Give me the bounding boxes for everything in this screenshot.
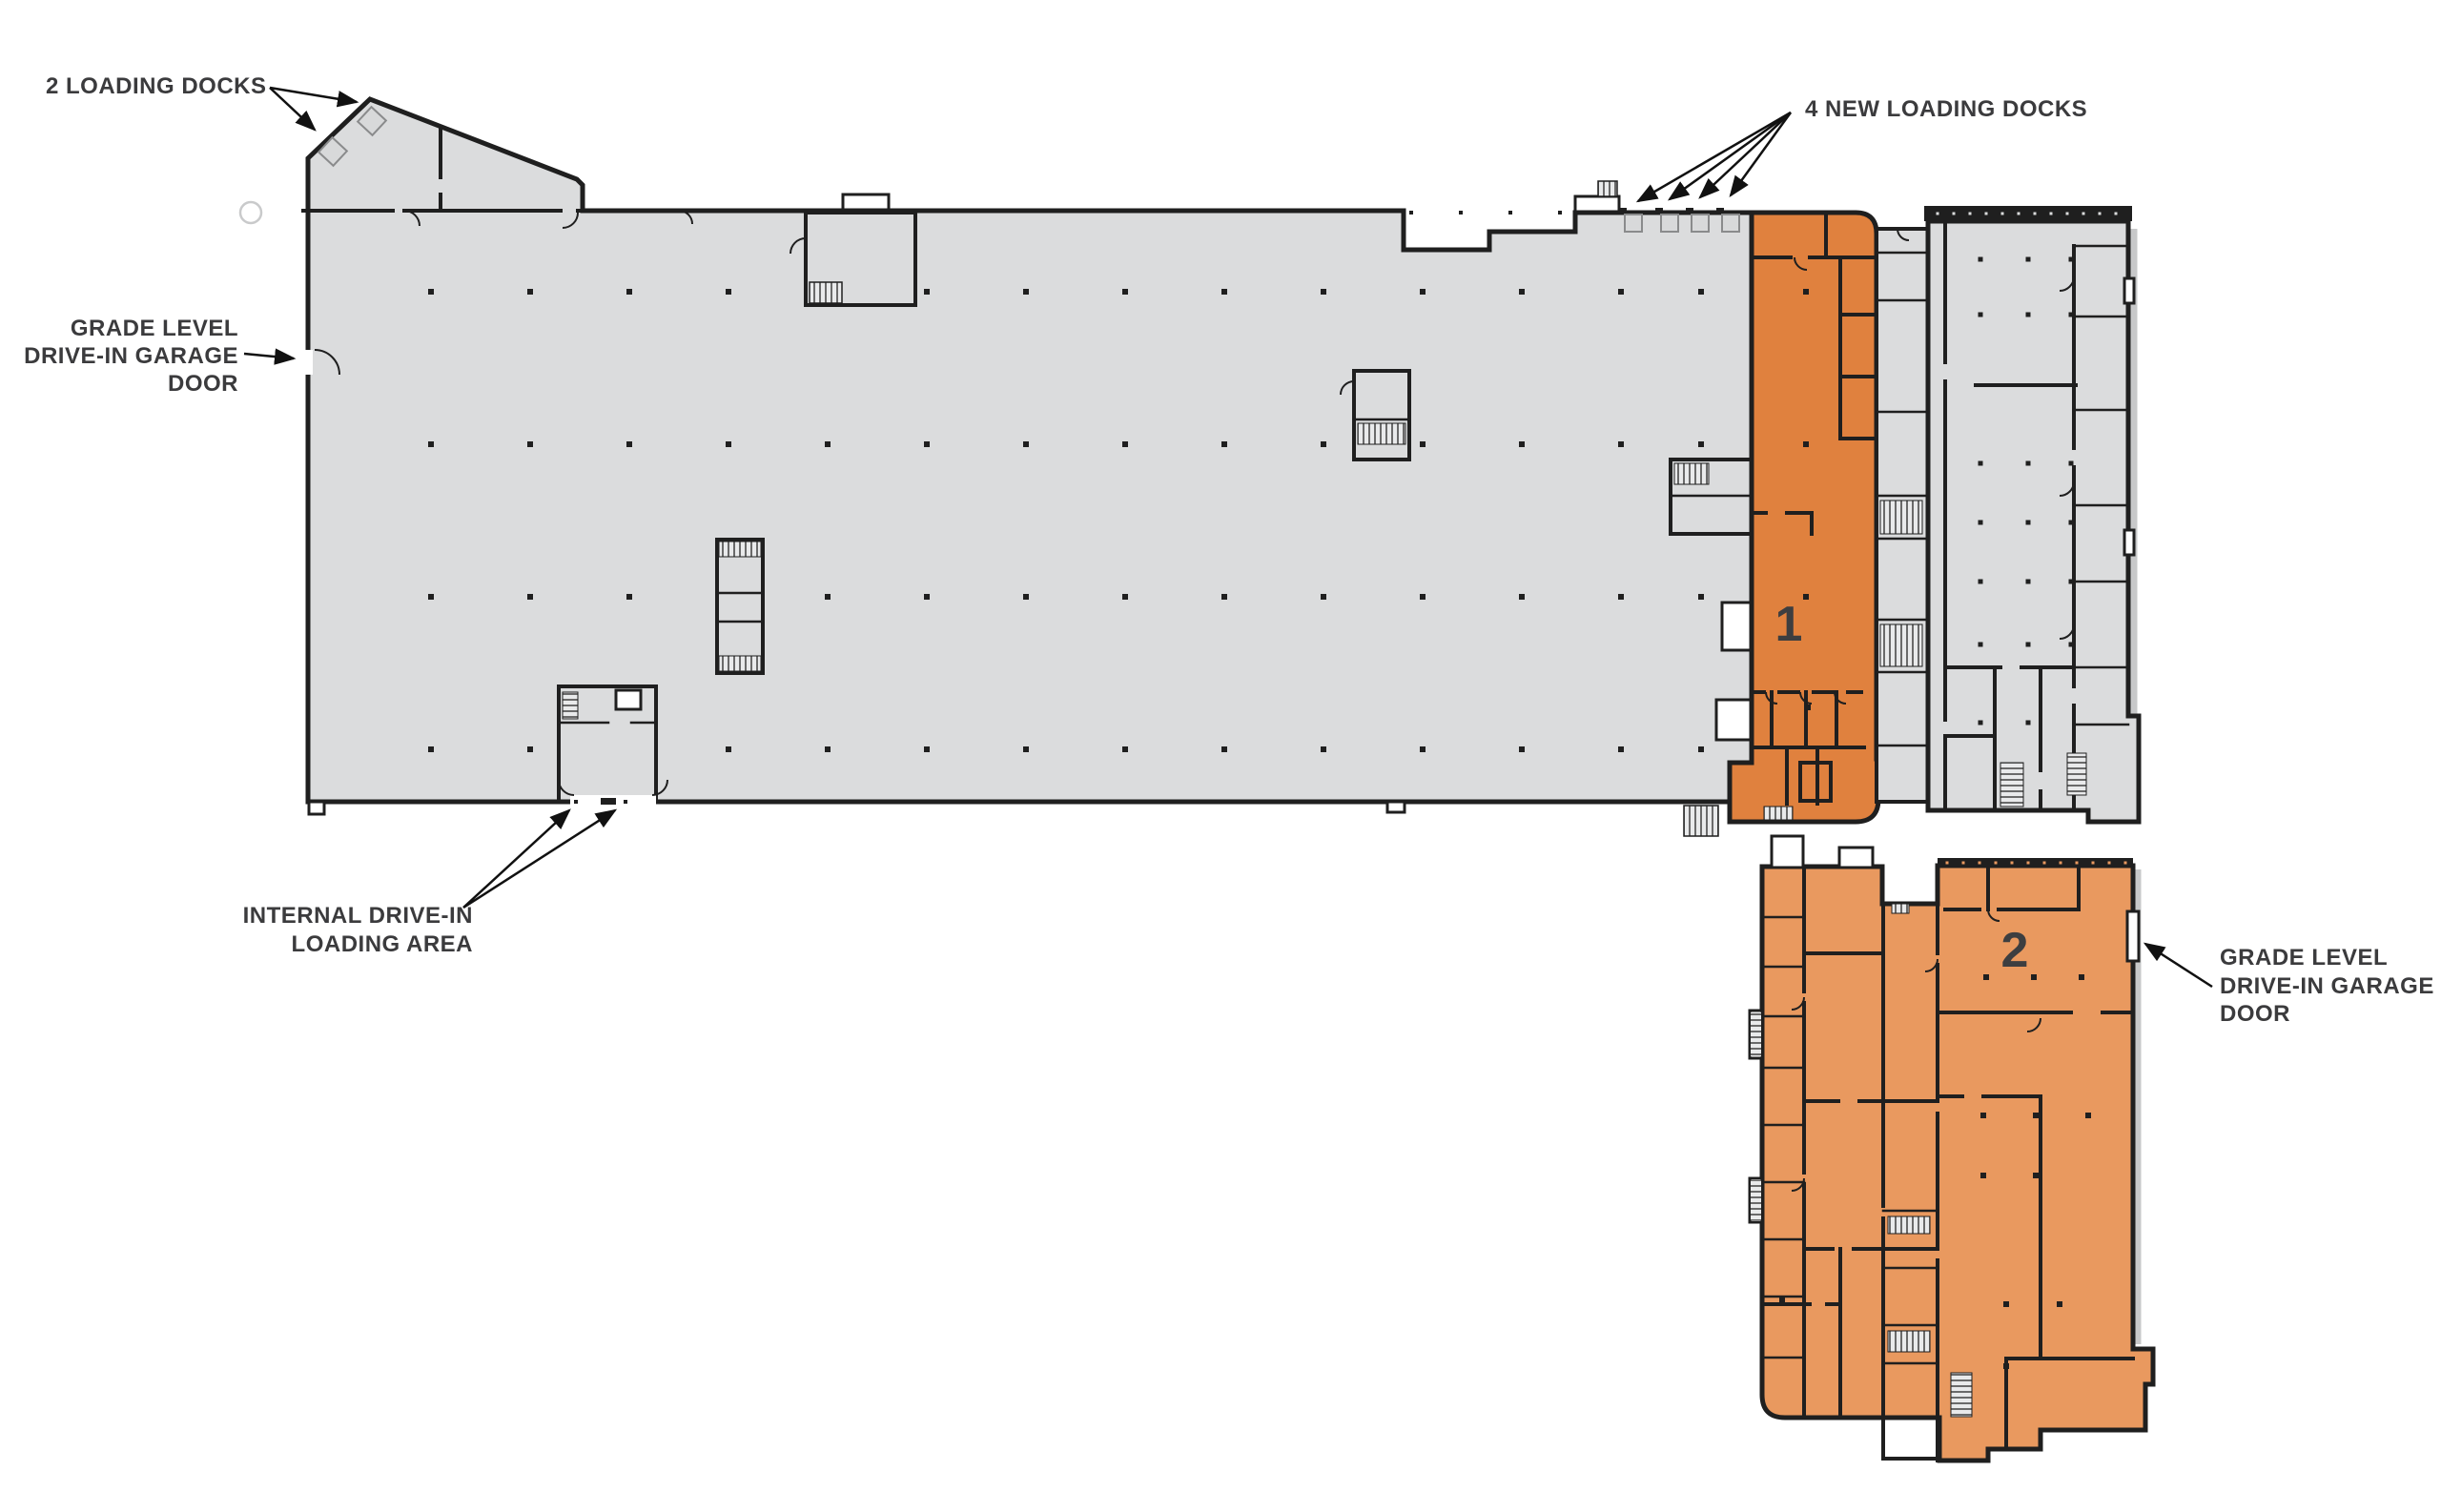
right-wing xyxy=(1928,221,2139,822)
svg-text:GRADE LEVEL: GRADE LEVEL xyxy=(2220,945,2388,971)
svg-text:DOOR: DOOR xyxy=(2220,1001,2290,1027)
label-grade-level-left: GRADE LEVEL DRIVE-IN GARAGE DOOR xyxy=(24,316,238,397)
label-grade-level-right: GRADE LEVEL DRIVE-IN GARAGE DOOR xyxy=(2220,945,2434,1027)
floor-plan-canvas: 2 LOADING DOCKS 4 NEW LOADING DOCKS GRAD… xyxy=(0,0,2441,1512)
svg-text:GRADE LEVEL: GRADE LEVEL xyxy=(71,316,238,341)
suite-2-top-band xyxy=(1938,858,2133,868)
site-marker-circle xyxy=(240,202,261,223)
roof-bump xyxy=(843,194,889,210)
main-warehouse xyxy=(308,99,1752,802)
vent-hatch xyxy=(1684,806,1718,836)
label-internal-drive-in: INTERNAL DRIVE-IN LOADING AREA xyxy=(243,903,473,957)
entry-notch xyxy=(1575,196,1619,212)
svg-text:DOOR: DOOR xyxy=(168,371,238,397)
svg-text:DRIVE-IN GARAGE: DRIVE-IN GARAGE xyxy=(24,343,238,369)
suite-1-number: 1 xyxy=(1775,597,1803,652)
suite-2-roof-tabs xyxy=(1772,836,1873,868)
suite-2-number: 2 xyxy=(2001,923,2029,978)
connector-core xyxy=(1877,229,1928,802)
svg-text:INTERNAL DRIVE-IN: INTERNAL DRIVE-IN xyxy=(243,903,473,929)
svg-text:DRIVE-IN GARAGE: DRIVE-IN GARAGE xyxy=(2220,973,2434,999)
vent-hatch xyxy=(1598,181,1617,196)
svg-text:LOADING AREA: LOADING AREA xyxy=(292,931,473,957)
label-4-new-loading-docks: 4 NEW LOADING DOCKS xyxy=(1805,96,2087,122)
label-2-loading-docks: 2 LOADING DOCKS xyxy=(46,73,267,99)
